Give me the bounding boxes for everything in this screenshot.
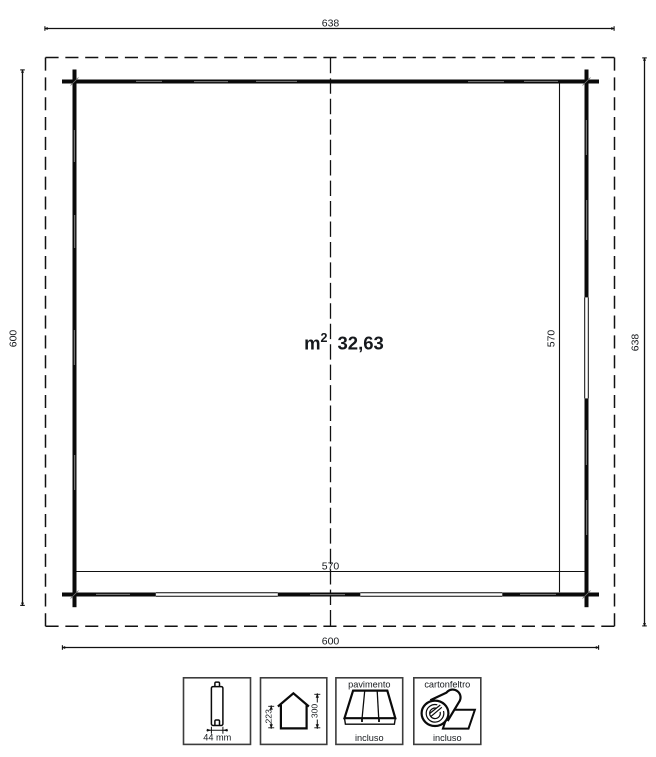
svg-text:638: 638 (322, 18, 340, 30)
svg-text:300: 300 (310, 704, 320, 719)
svg-text:570: 570 (546, 330, 558, 348)
svg-text:pavimento: pavimento (348, 679, 390, 689)
svg-text:570: 570 (322, 561, 340, 573)
svg-text:638: 638 (630, 334, 642, 352)
svg-text:32,63: 32,63 (338, 332, 384, 353)
svg-text:incluso: incluso (355, 733, 384, 743)
svg-text:44 mm: 44 mm (203, 733, 231, 743)
svg-text:incluso: incluso (433, 733, 462, 743)
svg-text:223: 223 (263, 709, 273, 724)
svg-text:cartonfeltro: cartonfeltro (424, 679, 470, 689)
svg-text:600: 600 (322, 636, 340, 648)
svg-text:600: 600 (8, 330, 20, 348)
